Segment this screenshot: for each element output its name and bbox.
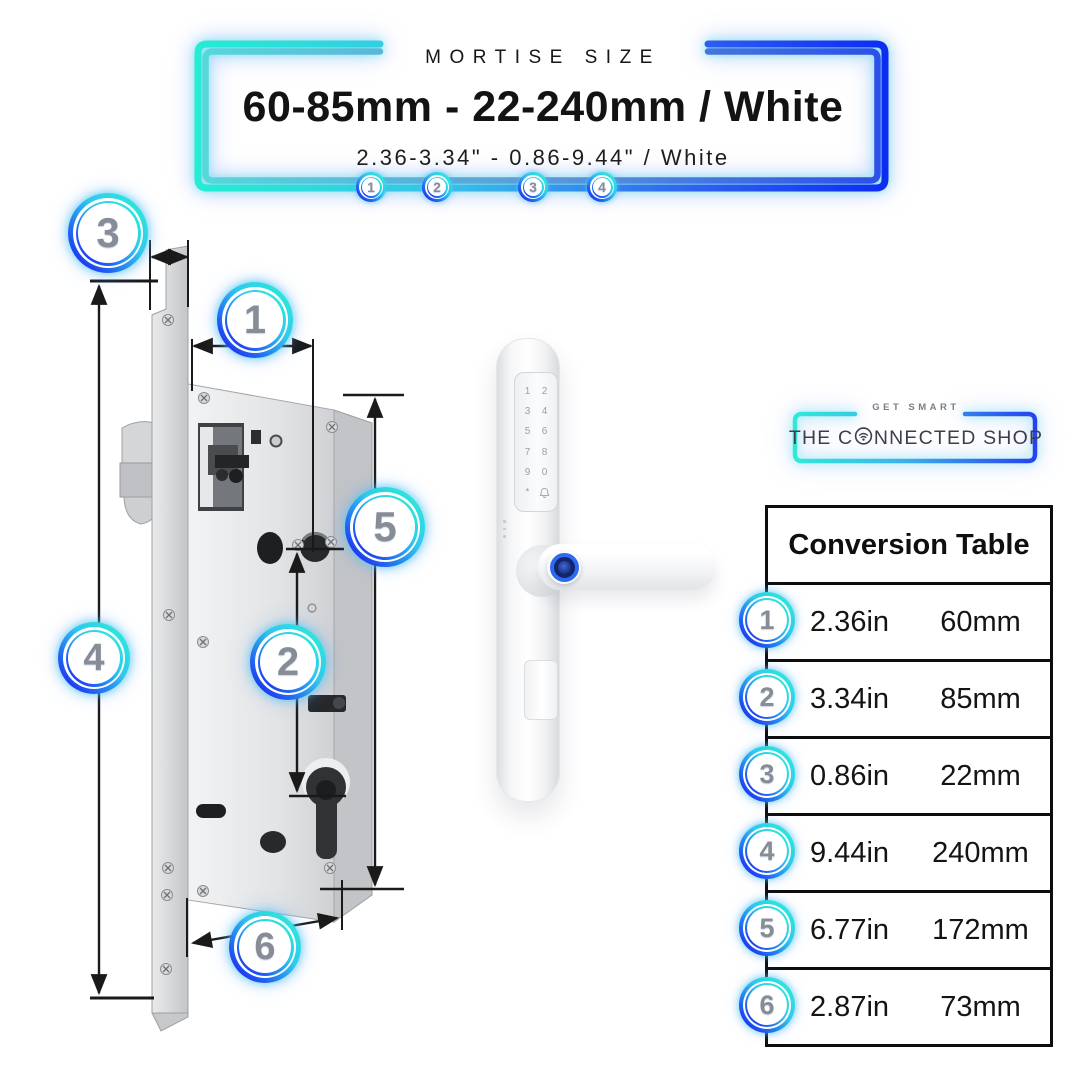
row-marker-1: 1: [739, 592, 795, 648]
cell-mm: 60mm: [911, 585, 1050, 659]
banner: MORTISE SIZE 60-85mm - 22-240mm / White …: [198, 33, 888, 171]
row-marker-2: 2: [739, 669, 795, 725]
keypad-key-star: *: [519, 483, 536, 503]
cell-mm: 172mm: [911, 893, 1050, 967]
smart-handle: 1 2 3 4 5 6 7 8 9 0 *: [490, 335, 730, 815]
infographic-page: { "banner": { "eyebrow": "MORTISE SIZE",…: [0, 0, 1080, 1080]
cell-mm: 73mm: [911, 970, 1050, 1044]
table-row: 6.77in 172mm: [768, 890, 1050, 967]
table-row: 9.44in 240mm: [768, 813, 1050, 890]
banner-marker-2: 2: [422, 172, 452, 202]
wifi-icon: [853, 426, 874, 451]
banner-eyebrow: MORTISE SIZE: [198, 47, 888, 69]
table-row: 3.34in 85mm: [768, 659, 1050, 736]
conversion-table: Conversion Table 2.36in 60mm 3.34in 85mm…: [765, 505, 1053, 1047]
product-subtitle: 2.36-3.34" - 0.86-9.44" / White: [198, 145, 888, 171]
cell-mm: 22mm: [911, 739, 1050, 813]
keypad-key-9: 9: [519, 462, 536, 482]
faceplate: [152, 246, 188, 1031]
table-row: 2.87in 73mm: [768, 967, 1050, 1044]
callout-3: 3: [68, 193, 148, 273]
table-title: Conversion Table: [768, 508, 1050, 582]
bell-icon: [536, 483, 553, 503]
table-row: 2.36in 60mm: [768, 582, 1050, 659]
keypad-key-2: 2: [536, 381, 553, 401]
led-dots: [503, 520, 506, 538]
keypad: 1 2 3 4 5 6 7 8 9 0 *: [514, 372, 558, 512]
callout-1: 1: [217, 282, 293, 358]
keypad-key-4: 4: [536, 401, 553, 421]
banner-marker-4: 4: [587, 172, 617, 202]
keypad-key-6: 6: [536, 422, 553, 442]
brand-tagline: GET SMART: [786, 402, 1046, 413]
row-marker-5: 5: [739, 900, 795, 956]
fingerprint-sensor: [547, 550, 581, 584]
keypad-key-3: 3: [519, 401, 536, 421]
row-marker-4: 4: [739, 823, 795, 879]
row-marker-3: 3: [739, 746, 795, 802]
brand-name: THE C NNECTED SHOP: [786, 426, 1046, 451]
product-title: 60-85mm - 22-240mm / White: [198, 83, 888, 132]
row-marker-6: 6: [739, 977, 795, 1033]
keypad-key-8: 8: [536, 442, 553, 462]
callout-2: 2: [250, 624, 326, 700]
cell-mm: 240mm: [911, 816, 1050, 890]
callout-4: 4: [58, 622, 130, 694]
table-row: 0.86in 22mm: [768, 736, 1050, 813]
banner-marker-1: 1: [356, 172, 386, 202]
callout-6: 6: [229, 911, 301, 983]
cell-mm: 85mm: [911, 662, 1050, 736]
banner-marker-3: 3: [518, 172, 548, 202]
callout-5: 5: [345, 487, 425, 567]
keypad-key-0: 0: [536, 462, 553, 482]
key-cover-panel: [524, 660, 558, 720]
keypad-key-5: 5: [519, 422, 536, 442]
keypad-key-7: 7: [519, 442, 536, 462]
keypad-key-1: 1: [519, 381, 536, 401]
